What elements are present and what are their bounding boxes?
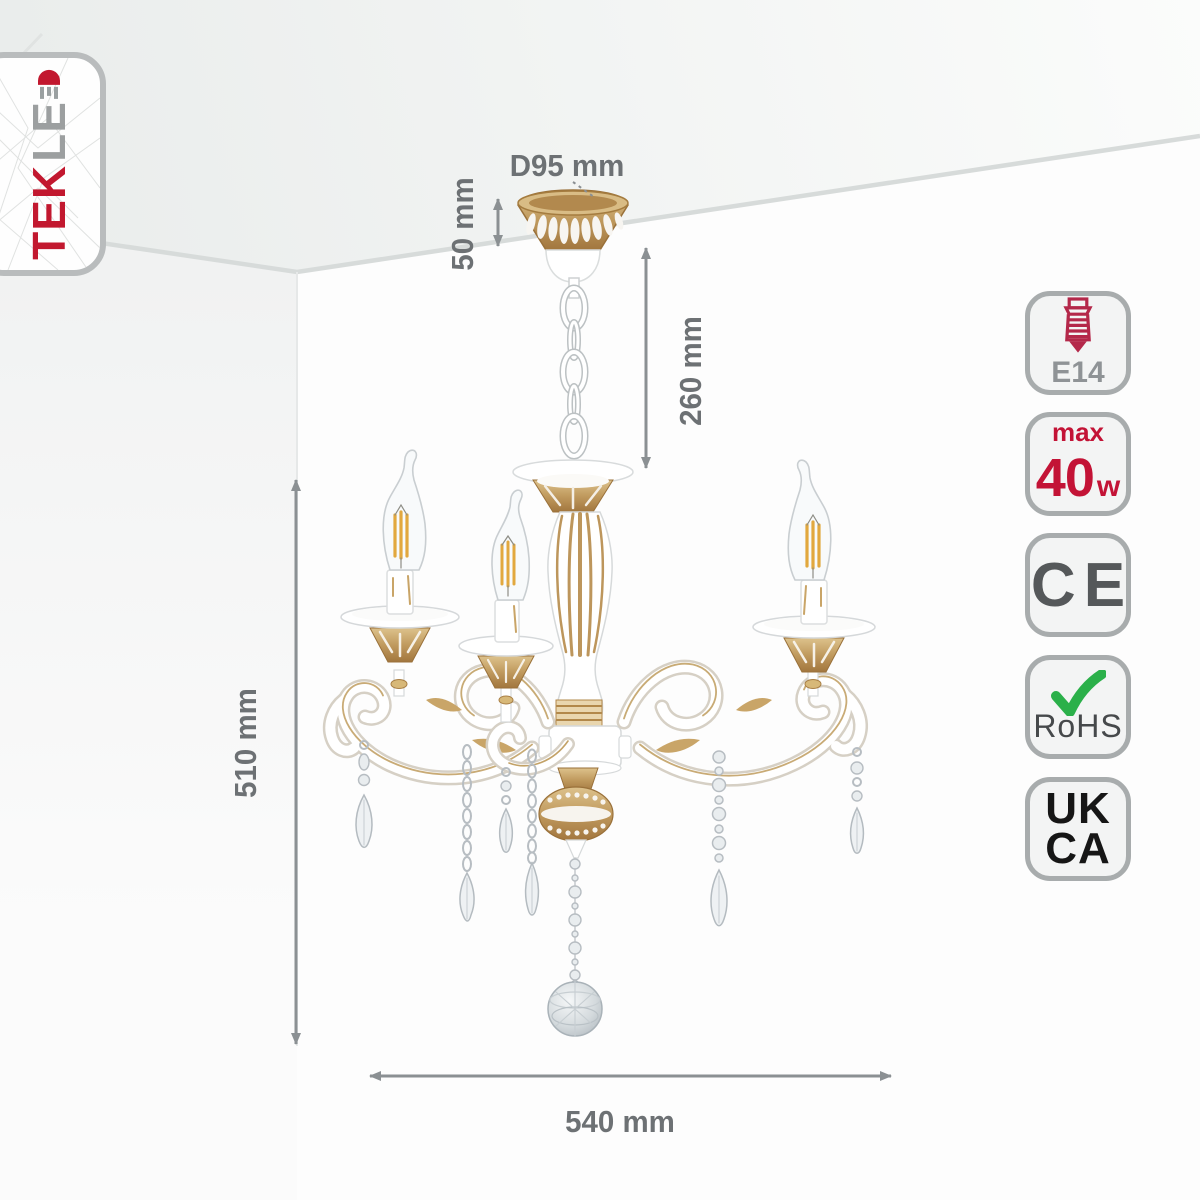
chandelier: [330, 190, 875, 1036]
fixture-width-label: 540 mm: [565, 1104, 675, 1140]
badge-ce-mark: CE: [1025, 533, 1131, 637]
badge-max-wattage: max 40 w: [1025, 412, 1131, 516]
wattage-unit-label: w: [1097, 470, 1120, 504]
crystal-ball: [548, 982, 602, 1036]
fixture-height-label: 510 mm: [228, 688, 264, 798]
socket-type-label: E14: [1051, 356, 1104, 390]
middle-candle: [459, 490, 553, 688]
badge-e14-socket: E14: [1025, 291, 1131, 395]
brand-name-red: TEK: [22, 165, 76, 260]
wattage-prefix-label: max: [1052, 419, 1104, 445]
badge-rohs: RoHS: [1025, 655, 1131, 759]
ukca-line2-label: CA: [1045, 829, 1111, 869]
pendant: [500, 768, 513, 852]
left-candle: [341, 450, 459, 662]
rohs-label: RoHS: [1033, 708, 1122, 745]
ukca-line1-label: UK: [1045, 789, 1111, 829]
led-diode-icon: [34, 65, 64, 101]
wattage-value-label: 40: [1036, 447, 1094, 509]
e14-bulb-icon: [1054, 296, 1102, 358]
bottom-finial: [539, 768, 613, 1036]
suspension-chain: [563, 278, 585, 456]
brand-logo-badge: TEKLE: [0, 52, 106, 276]
suspension-length-label: 260 mm: [673, 316, 709, 426]
product-spec-sheet: { "page": { "background": "#fdfdfd" }, "…: [0, 0, 1200, 1200]
right-candle: [753, 460, 875, 672]
bead-chain: [569, 859, 581, 980]
canopy-diameter-label: D95 mm: [510, 148, 625, 184]
canopy-height-label: 50 mm: [445, 177, 481, 270]
pendant: [851, 748, 864, 853]
central-column: [513, 460, 633, 775]
right-arm: [624, 664, 861, 779]
brand-name-gray: LE: [22, 101, 76, 162]
badge-ukca: UK CA: [1025, 777, 1131, 881]
ce-mark-label: CE: [1031, 550, 1133, 621]
brand-logo: TEKLE: [22, 68, 76, 260]
